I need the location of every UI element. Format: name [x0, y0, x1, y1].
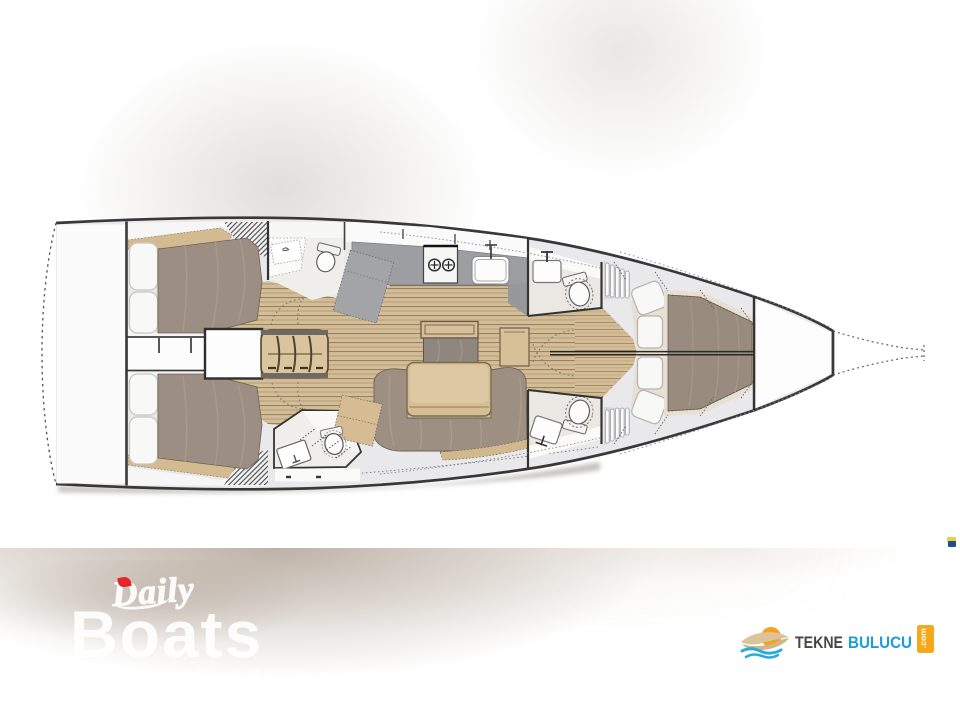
svg-text:TEKNE: TEKNE — [795, 633, 843, 652]
svg-text:.com: .com — [918, 628, 928, 648]
svg-text:BULUCU: BULUCU — [848, 633, 912, 652]
